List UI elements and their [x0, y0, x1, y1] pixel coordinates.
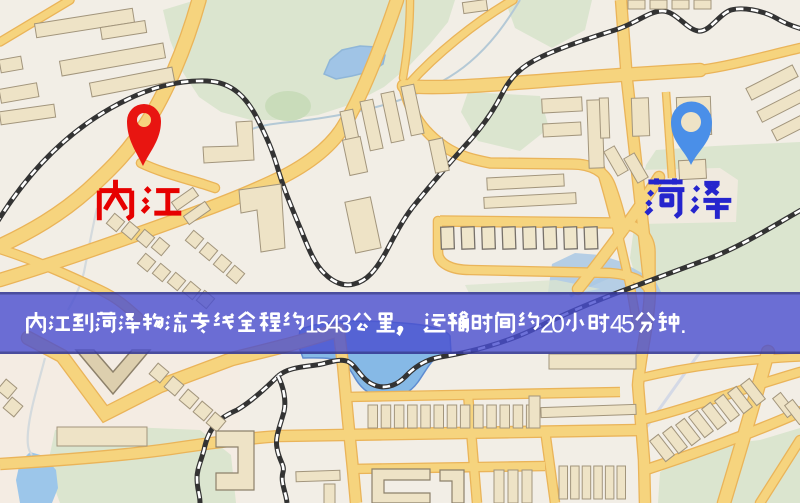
svg-text:1543: 1543	[305, 311, 351, 339]
svg-text:20: 20	[540, 311, 564, 339]
svg-text:.: .	[680, 311, 687, 339]
svg-text:45: 45	[610, 311, 634, 339]
